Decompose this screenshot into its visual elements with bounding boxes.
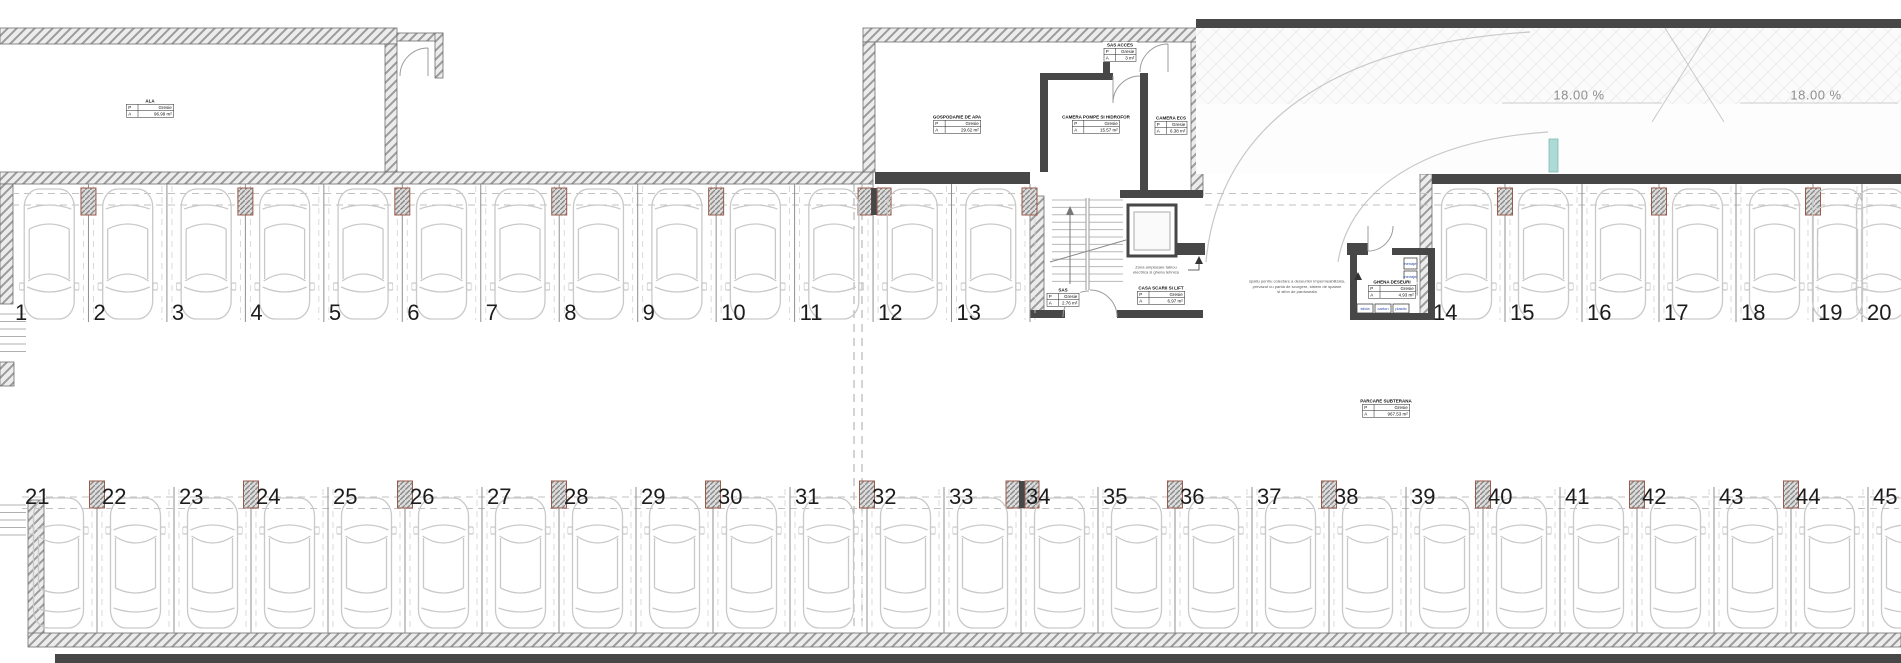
car-glyph [260,498,320,628]
room-info-value: 6.38 m² [1167,128,1188,135]
wall-dark [1117,310,1203,318]
car-glyph [1415,498,1475,628]
wall [863,28,1203,42]
stall-number: 21 [25,486,49,508]
column [1022,188,1037,215]
room-info-table: PGresieA29.62 m² [933,120,981,134]
car-glyph [1492,498,1552,628]
column [238,188,253,215]
room-label-camera-pompe: CAMERA POMPE SI HIDROFORPGresieA15.57 m² [1061,114,1131,134]
room-label-ghena: GHENA DESEURIPGresieA4.93 m² [1367,279,1417,299]
exit-stairs [0,314,26,535]
staircase [1050,198,1126,290]
column [1006,481,1020,508]
room-info-table: PGresieA967.53 m² [1362,404,1410,418]
wall-dark [1350,313,1435,320]
room-info-key: A [127,111,139,118]
wall [435,33,443,78]
room-info-key: A [1047,300,1059,307]
car-glyph [1723,498,1783,628]
car-glyph [1107,498,1167,628]
ramp-slope-label: 18.00 % [1553,88,1604,103]
car-glyph [568,498,628,628]
stall-number: 31 [795,486,819,508]
stall-number: 22 [102,486,126,508]
car-glyph [1877,498,1901,628]
room-info-table: PGresieA6.38 m² [1155,121,1188,135]
stall-number: 32 [872,486,896,508]
columns-layer [81,188,1821,508]
note-arrows [1188,256,1362,280]
room-info-table: PGresieA6.97 m² [1137,291,1185,305]
car-glyph [491,498,551,628]
car-glyph [876,498,936,628]
stall-number: 38 [1334,486,1358,508]
door-arc [1090,290,1117,317]
annotation-ghena-note: spatiu pentru colectare a deseurilor imp… [1249,279,1345,295]
stall-lines-layer [12,184,1899,633]
stall-number: 26 [410,486,434,508]
stall-number: 25 [333,486,357,508]
room-info-key: A [1104,55,1116,62]
room-info-value: 967.53 m² [1374,411,1410,418]
wall-dark [1196,19,1901,28]
car-glyph [647,189,707,319]
stall-number: 30 [718,486,742,508]
car-glyph [337,498,397,628]
column [81,188,96,215]
stall-number: 35 [1103,486,1127,508]
car-glyph [1800,498,1860,628]
room-name: SAS [1047,288,1080,293]
room-info-key: A [1073,127,1085,134]
room-label-ala: ALAPGresieA96.99 m² [125,98,175,118]
stall-number: 40 [1488,486,1512,508]
annotation-zona-tablou: Zona amplasare tablouelectrica si ghena … [1133,265,1179,276]
wall-dark [1432,174,1901,184]
stall-number: 12 [878,302,902,324]
car-glyph [333,189,393,319]
teal-marker [1549,139,1558,172]
car-glyph [1184,498,1244,628]
stall-number: 7 [486,302,498,324]
stall-number: 9 [643,302,655,324]
room-info-value: 6.97 m² [1149,298,1185,305]
stall-number: 16 [1587,302,1611,324]
car-glyph [799,498,859,628]
car-glyph [106,498,166,628]
car-glyph [255,189,315,319]
stall-number: 45 [1873,486,1897,508]
car-glyph [1646,498,1706,628]
stall-number: 5 [329,302,341,324]
room-label-sas-acces: SAS ACCESPGresieA3 m² [1103,42,1138,62]
wall [28,633,1901,647]
expansion-joint [854,184,862,633]
car-glyph [490,189,550,319]
stall-number: 24 [256,486,280,508]
column [552,188,567,215]
stall-number: 6 [407,302,419,324]
column [877,188,891,215]
room-info-key: A [1363,411,1375,418]
column [1498,188,1513,215]
car-glyph [176,189,236,319]
door-arc [1140,44,1168,72]
room-info-value: 3 m² [1116,55,1137,62]
room-label-casa-scarii: CASA SCARII SI LIFTPGresieA6.97 m² [1136,285,1186,305]
column [858,188,872,215]
stall-number: 41 [1565,486,1589,508]
car-glyph [1030,498,1090,628]
site-boundary-line [55,654,1901,663]
waste-bin-label: sticla [1360,306,1370,311]
wall-dark [1140,73,1148,190]
room-info-table: PGresieA15.57 m² [1072,120,1120,134]
stall-number: 1 [15,302,27,324]
elevator-car [1134,212,1170,250]
wall [385,44,397,172]
stall-number: 18 [1741,302,1765,324]
car-glyph [953,498,1013,628]
stall-number: 10 [721,302,745,324]
room-label-sas: SASPGresieA2.76 m² [1046,287,1081,307]
room-info-table: PGresieA4.93 m² [1368,285,1416,299]
room-info-key: A [1155,128,1167,135]
stall-number: 14 [1433,302,1457,324]
waste-bin-label: carton [1377,306,1388,311]
room-name: ALA [126,99,174,104]
stall-number: 23 [179,486,203,508]
arrow-up-icon [1195,256,1203,264]
stall-number: 15 [1510,302,1534,324]
room-name: CASA SCARII SI LIFT [1137,286,1185,291]
room-name: SAS ACCES [1104,43,1137,48]
room-name: GOSPODARIE DE APA [933,115,981,120]
stall-number: 27 [487,486,511,508]
stall-number: 44 [1796,486,1820,508]
stall-number: 4 [250,302,262,324]
waste-bin-label: plastic [1395,306,1406,311]
room-info-key: A [933,127,945,134]
wall [0,362,14,386]
room-name: GHENA DESEURI [1368,280,1416,285]
wall-dark [1120,190,1203,198]
room-name: CAMERA POMPE SI HIDROFOR [1062,115,1130,120]
column [709,188,724,215]
elevator [1128,205,1176,256]
column [395,188,410,215]
door-arc [1113,76,1140,103]
door-arc [400,48,428,76]
wall-dark [1040,73,1048,172]
wall-dark [875,172,1030,184]
stall-number: 11 [800,302,823,324]
stall-number: 19 [1818,302,1842,324]
stall-number: 36 [1180,486,1204,508]
room-info-value: 2.76 m² [1059,300,1080,307]
room-label-camera-ecs: CAMERA ECSPGresieA6.38 m² [1154,115,1189,135]
wall-dark [1040,73,1113,80]
stall-number: 39 [1411,486,1435,508]
stall-number: 37 [1257,486,1281,508]
room-info-value: 29.62 m² [945,127,981,134]
room-info-key: A [1369,292,1381,299]
room-info-value: 96.99 m² [138,111,174,118]
stall-number: 8 [564,302,576,324]
room-info-value: 15.57 m² [1084,127,1120,134]
wall-dark [1350,248,1357,320]
room-info-key: A [1138,298,1150,305]
wall [0,184,13,304]
waste-bin-label: menajer [1403,261,1418,266]
room-name: PARCARE SUBTERANA [1360,399,1411,404]
car-glyph [722,498,782,628]
ramp-surface-lower [1196,104,1901,174]
wall [863,42,875,172]
stall-number: 33 [949,486,973,508]
wall [0,172,873,184]
stall-number: 3 [172,302,184,324]
car-glyph [98,189,158,319]
wall [28,500,44,636]
room-info-value: 4.93 m² [1380,292,1416,299]
floor-plan: sticlacartonplasticmenajermenajermenajer… [0,0,1901,663]
car-glyph [1338,498,1398,628]
car-glyph [183,498,243,628]
stall-number: 20 [1867,302,1891,324]
stall-number: 43 [1719,486,1743,508]
floor-plan-drawing: sticlacartonplasticmenajermenajermenajer [0,0,1901,663]
stall-number: 2 [93,302,105,324]
room-name: CAMERA ECS [1155,116,1188,121]
stall-number: 34 [1026,486,1050,508]
room-info-table: PGresieA3 m² [1104,48,1137,62]
car-glyph [1569,498,1629,628]
room-info-table: PGresieA2.76 m² [1047,293,1080,307]
car-glyph [19,189,79,319]
column [1652,188,1667,215]
leader-line [1188,264,1199,270]
stall-number: 29 [641,486,665,508]
door-arc [1368,226,1393,251]
car-glyph [412,189,472,319]
stall-number: 17 [1664,302,1688,324]
wall [0,28,397,44]
cars-layer [19,189,1901,628]
ramp-slope-label: 18.00 % [1790,88,1841,103]
car-glyph [568,189,628,319]
car-glyph [645,498,705,628]
room-info-table: PGresieA96.99 m² [126,104,174,118]
car-glyph [414,498,474,628]
stall-number: 13 [957,302,981,324]
room-label-gospodarie-apa: GOSPODARIE DE APAPGresieA29.62 m² [932,114,982,134]
room-label-parcare: PARCARE SUBTERANAPGresieA967.53 m² [1359,398,1412,418]
stall-number: 42 [1642,486,1666,508]
stall-number: 28 [564,486,588,508]
car-glyph [1261,498,1321,628]
wall-dark [1177,243,1205,255]
